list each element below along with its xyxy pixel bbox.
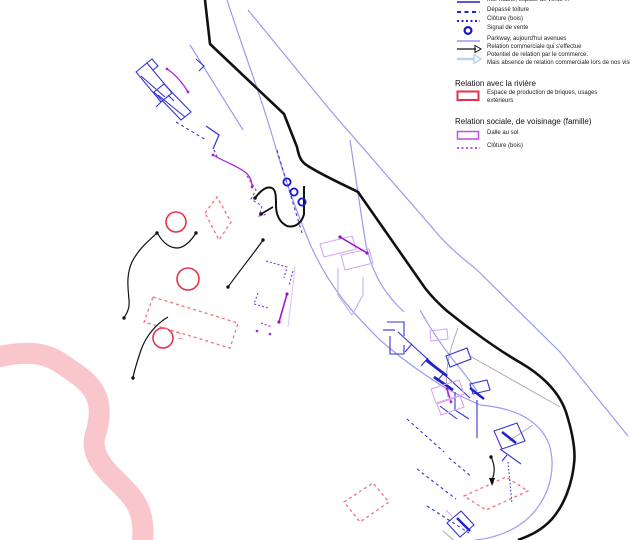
legend-item-label: Signal de vente	[487, 25, 528, 33]
map-stage: Mur habité, espace de vente ... Dépassé …	[0, 0, 630, 540]
legend-item-label: Mur habité, espace de vente ...	[487, 0, 569, 5]
legend-item-wall: Mur habité, espace de vente ...	[455, 0, 569, 7]
gray-lines	[443, 328, 560, 540]
legend-item-fence-violet: Clôture (bois)	[455, 143, 523, 153]
blue-fences	[176, 122, 302, 233]
access-loop-road	[253, 186, 304, 226]
magenta-links	[166, 68, 453, 404]
legend-item-label: Dépassé toiture	[487, 7, 529, 15]
brick-area-rect-swatch	[455, 90, 482, 102]
legend-section-title-social: Relation sociale, de voisinage (famille)	[455, 117, 592, 126]
fence-dots-violet-swatch	[455, 143, 482, 153]
ground-slab-rect-swatch	[455, 130, 482, 141]
legend-item-label: Parkway, aujourd'hui avenues	[487, 36, 566, 44]
legend-item-label: Espace de production de briques, usages …	[487, 90, 597, 105]
legend-item-brick-area: Espace de production de briques, usages …	[455, 90, 597, 105]
river-band	[0, 353, 143, 540]
legend-item-potential-relation: Potentiel de relation par le commerce. M…	[455, 52, 630, 67]
legend-section-title-river: Relation avec la rivière	[455, 79, 536, 88]
buildings-northwest	[136, 59, 204, 120]
inhabited-wall-line-swatch	[455, 0, 482, 7]
sale-signal-circle-icon	[455, 25, 482, 36]
legend-item-ground-slab: Dalle au sol	[455, 130, 518, 141]
legend-item-label: Relation commerciale qui s'effectue	[487, 44, 581, 52]
legend-item-label: Clôture (bois)	[487, 16, 523, 24]
violet-fences	[247, 176, 295, 335]
legend-item-sale-signal: Signal de vente	[455, 25, 528, 36]
legend-item-label: Potentiel de relation par le commerce. M…	[487, 52, 630, 67]
building-bottom	[446, 510, 474, 537]
legend-item-label: Clôture (bois)	[487, 143, 523, 151]
legend: Mur habité, espace de vente ... Dépassé …	[455, 0, 630, 170]
legend-item-label: Dalle au sol	[487, 130, 518, 138]
potential-arrow-icon	[455, 52, 482, 66]
